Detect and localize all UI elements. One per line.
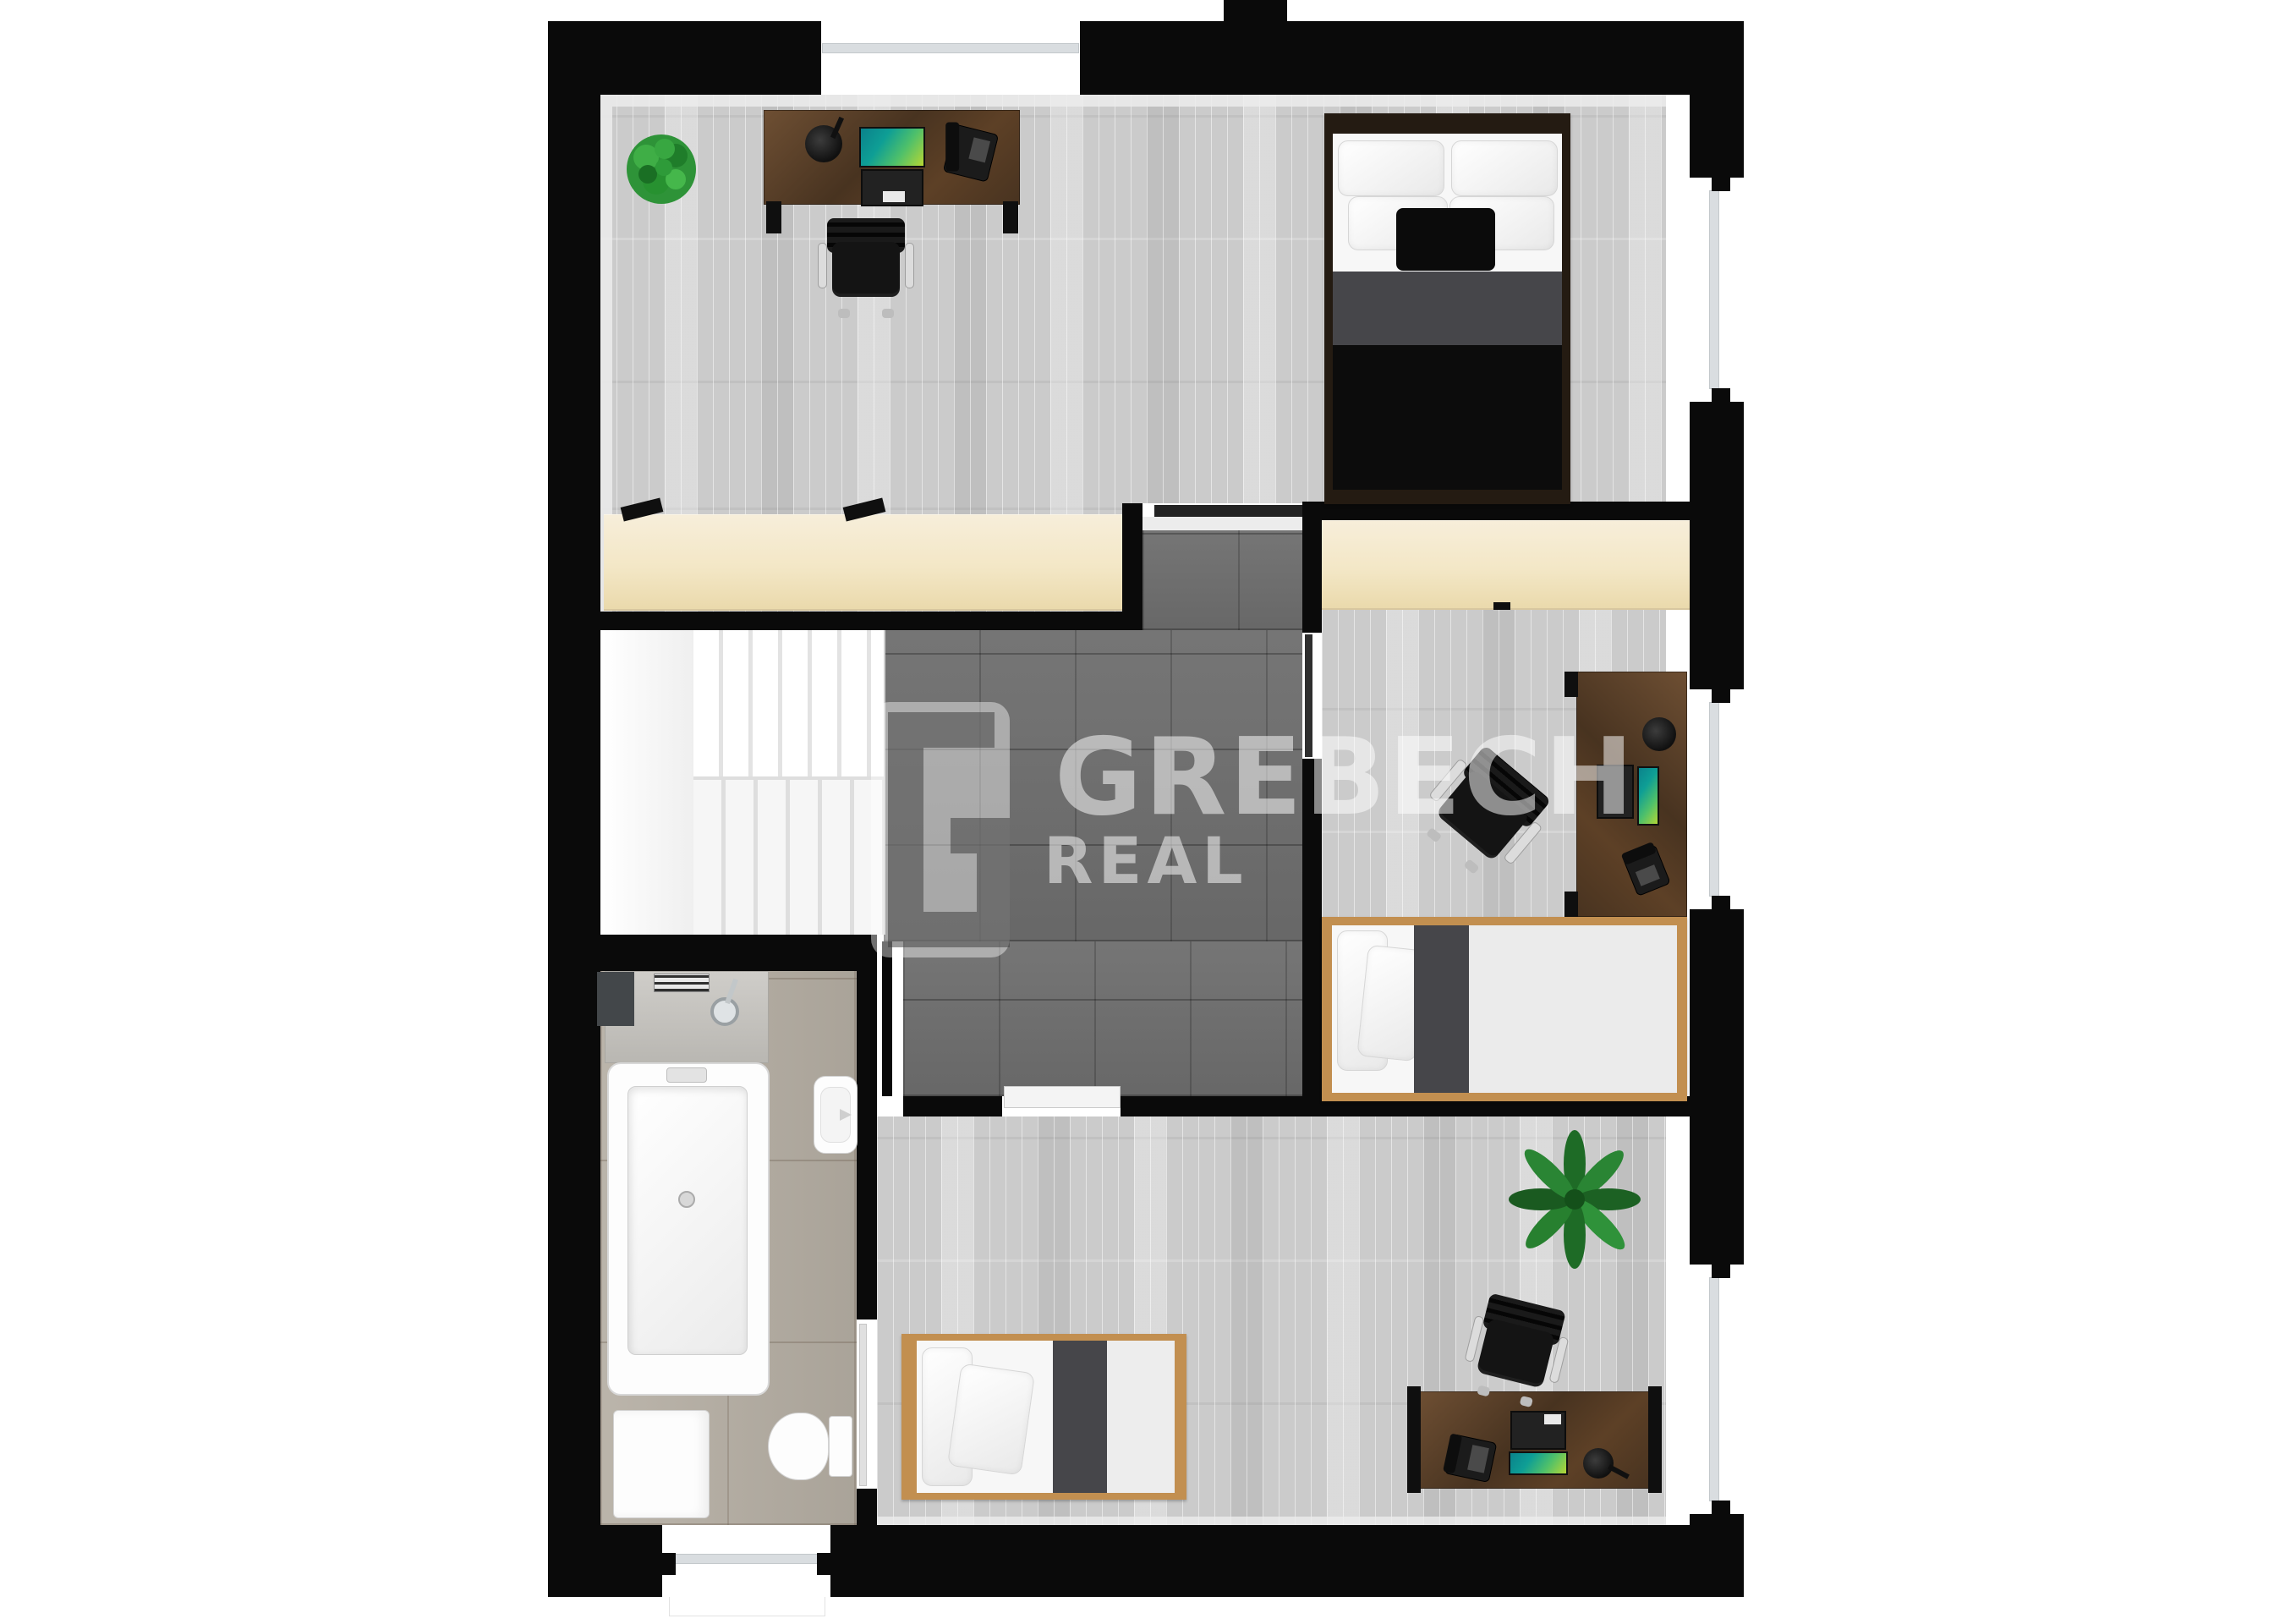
wall-bathroom-east-upper: [857, 935, 877, 1319]
door-bathroom: [859, 1324, 867, 1486]
shower: [605, 971, 769, 1063]
shower-vent: [654, 974, 710, 992]
laptop-kids-south-tray: [1544, 1414, 1561, 1424]
wall-hall-east-upper: [1302, 520, 1322, 633]
wall-bedroomoffice-south-right: [1302, 502, 1690, 520]
stair-landing: [603, 623, 693, 935]
office-chair-1-caster-left: [838, 309, 851, 318]
telephone-kids-east-keypad: [1636, 864, 1660, 886]
window-east-3-glass: [1710, 1278, 1718, 1501]
wall-west: [548, 21, 600, 1597]
toilet-bowl: [768, 1413, 829, 1480]
plant-leaves: [1509, 1130, 1641, 1269]
telephone-kids-south: [1444, 1434, 1498, 1483]
double-bed-duvet: [1333, 345, 1562, 490]
window-north-glass: [823, 44, 1078, 52]
desk-office: [764, 110, 1020, 205]
wall-stub-below-stairs: [882, 941, 892, 1096]
double-bed-rail-left: [1324, 113, 1333, 504]
single-bed-east-sheet: [1469, 925, 1677, 1093]
door-kids-room-east: [1305, 634, 1312, 757]
double-bed-cushion: [1396, 208, 1495, 271]
single-bed-south-sheet: [1107, 1341, 1175, 1493]
potted-plant-office: [622, 130, 700, 208]
telephone-office-keypad: [968, 137, 990, 162]
desk-kids-east-bracket-bottom: [1564, 892, 1578, 917]
floor-hallway-arm: [1143, 530, 1302, 630]
window-east-2-glass: [1710, 703, 1718, 896]
bathtub-drain: [678, 1191, 695, 1208]
desk-kids-east: [1576, 672, 1687, 917]
wall-bathroom-north: [600, 935, 877, 971]
desk-kids-south: [1420, 1391, 1649, 1489]
washbasin: [814, 1076, 858, 1154]
wall-bathroom-east-lower: [857, 1489, 877, 1525]
wardrobe-handle-mark: [1493, 602, 1510, 610]
stair-lower-run: [693, 780, 884, 935]
single-bed-east: [1322, 917, 1687, 1101]
desk-office-leg-right: [1003, 201, 1018, 233]
toilet-tank: [829, 1416, 852, 1477]
wardrobe-bedroom-office: [604, 514, 1122, 611]
laptop-kids-south-screen: [1509, 1451, 1568, 1475]
window-north-jamb-left: [808, 21, 821, 95]
desk-lamp-kids-south-arm: [1608, 1464, 1630, 1479]
double-bed-footboard: [1324, 490, 1570, 504]
staircase: [603, 623, 884, 935]
desk-lamp-kids-south: [1583, 1448, 1614, 1479]
window-north-jamb-right: [1080, 21, 1093, 95]
double-bed-headboard: [1324, 113, 1570, 134]
window-east-1-jamb-bottom: [1712, 388, 1730, 402]
laptop-office-keyboard: [861, 169, 923, 206]
desk-office-leg-left: [766, 201, 781, 233]
wall-east-seg-1: [1690, 21, 1744, 178]
window-east-1-jamb-top: [1712, 178, 1730, 191]
laptop-kids-east-screen: [1637, 766, 1659, 826]
floorplan-page: { "watermark": { "logo_letter": "G", "br…: [0, 0, 2296, 1624]
office-chair-1: [822, 218, 910, 310]
washbasin-faucet: [840, 1109, 852, 1121]
hallway-arm-wall-face: [1143, 517, 1302, 530]
bathtub: [607, 1062, 770, 1396]
floorplan-stage: GREBECH REAL: [0, 0, 2296, 1624]
chimney-block: [1224, 0, 1287, 95]
wall-south-right: [830, 1525, 1744, 1597]
desk-kids-south-panel-left: [1407, 1386, 1421, 1493]
laptop-kids-east-keyboard: [1597, 765, 1634, 819]
window-south-glass: [676, 1555, 817, 1563]
single-bed-east-blanket-band: [1414, 925, 1469, 1093]
laptop-kids-south-keyboard: [1510, 1411, 1566, 1450]
window-east-2-jamb-bottom: [1712, 896, 1730, 909]
wall-hall-east-lower: [1302, 759, 1322, 1096]
double-bed-blanket-band: [1333, 272, 1562, 345]
stair-upper-run: [693, 623, 884, 777]
desk-lamp-kids-east: [1642, 717, 1676, 751]
single-bed-south: [901, 1334, 1186, 1500]
office-chair-1-arm-right: [906, 244, 913, 288]
office-chair-1-caster-right: [882, 309, 895, 318]
stair-run-divider: [693, 776, 884, 780]
telephone-kids-east-handset: [1621, 842, 1657, 865]
shower-glass-panel: [597, 972, 634, 1026]
telephone-office: [943, 123, 999, 182]
desk-kids-east-bracket-top: [1564, 672, 1578, 697]
door-bedroom-office: [1154, 505, 1302, 517]
office-chair-1-arm-left: [819, 244, 826, 288]
wall-bedroomoffice-south-left: [600, 612, 1143, 630]
door-kids-room-south: [1004, 1086, 1121, 1108]
window-south-jamb-right: [817, 1553, 830, 1575]
window-east-3-jamb-bottom: [1712, 1501, 1730, 1514]
window-east-1-glass: [1710, 191, 1718, 388]
bathtub-basin: [627, 1086, 748, 1355]
window-south-outer-sill: [669, 1597, 825, 1616]
washing-machine: [613, 1410, 710, 1518]
window-east-2-jamb-top: [1712, 689, 1730, 703]
potted-plant-kids-south: [1504, 1128, 1646, 1270]
window-east-3-jamb-top: [1712, 1265, 1730, 1278]
wall-north-right: [1093, 21, 1744, 95]
wall-stub-wardrobe: [1122, 503, 1143, 630]
double-bed-pillow-1: [1338, 140, 1444, 196]
laptop-office-screen: [859, 127, 925, 167]
single-bed-south-pillow-2: [947, 1363, 1035, 1475]
wall-east-seg-2: [1690, 402, 1744, 689]
double-bed: [1324, 113, 1570, 504]
office-chair-1-seat: [832, 242, 899, 297]
floor-hallway-lower: [903, 941, 1302, 1096]
laptop-office-touchpad: [883, 191, 905, 202]
telephone-kids-south-handset: [1443, 1433, 1462, 1473]
wall-hall-south-left: [903, 1096, 1002, 1116]
single-bed-south-blanket-band: [1053, 1341, 1107, 1493]
window-south-jamb-left: [662, 1553, 676, 1575]
double-bed-pillow-2: [1451, 140, 1558, 196]
window-north: [808, 21, 1093, 95]
wall-east-seg-3: [1690, 909, 1744, 1265]
wall-south-left: [548, 1525, 662, 1597]
telephone-office-handset: [945, 122, 959, 171]
double-bed-rail-right: [1562, 113, 1570, 504]
floor-hallway-main: [884, 630, 1302, 941]
bathtub-faucet: [666, 1067, 707, 1083]
telephone-kids-east: [1622, 844, 1671, 897]
desk-kids-south-panel-right: [1648, 1386, 1662, 1493]
wall-north-left: [548, 21, 808, 95]
wardrobe-kids-room-east: [1322, 520, 1690, 610]
telephone-kids-south-keypad: [1467, 1445, 1489, 1473]
